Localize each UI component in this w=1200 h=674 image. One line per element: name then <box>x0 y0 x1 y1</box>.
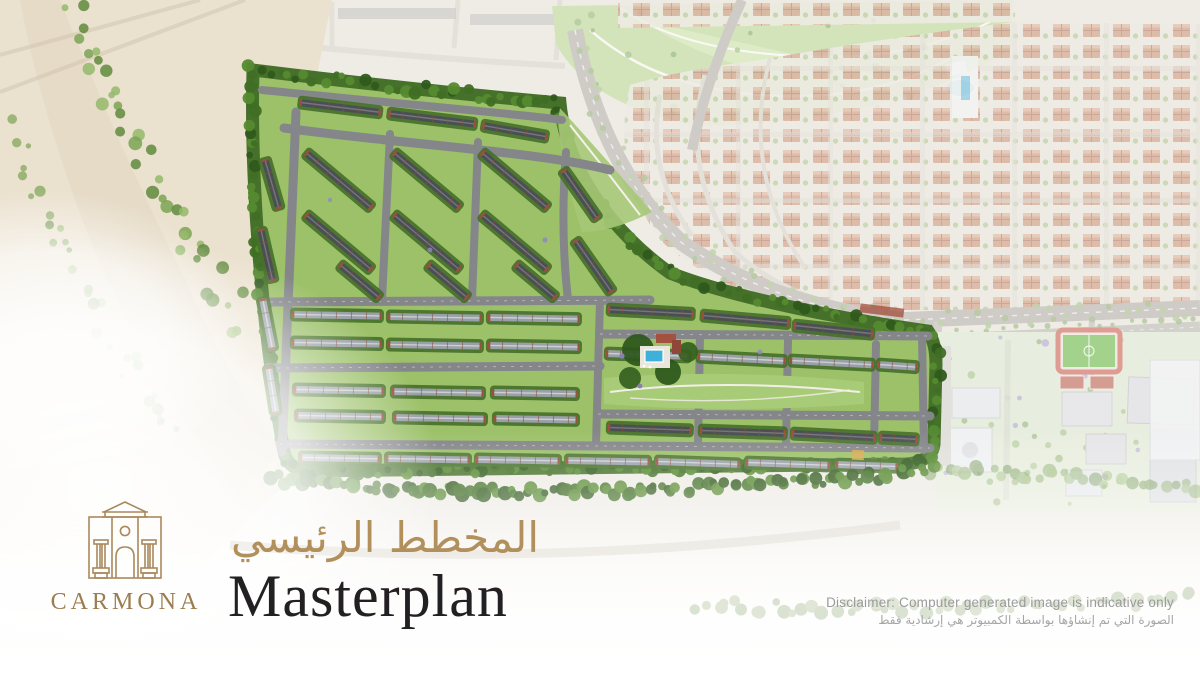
green-spine <box>604 374 864 409</box>
masterplan-page: CARMONA المخطط الرئيسي Masterplan Discla… <box>0 0 1200 674</box>
masterplan-map <box>0 0 1200 674</box>
pool <box>645 350 663 362</box>
